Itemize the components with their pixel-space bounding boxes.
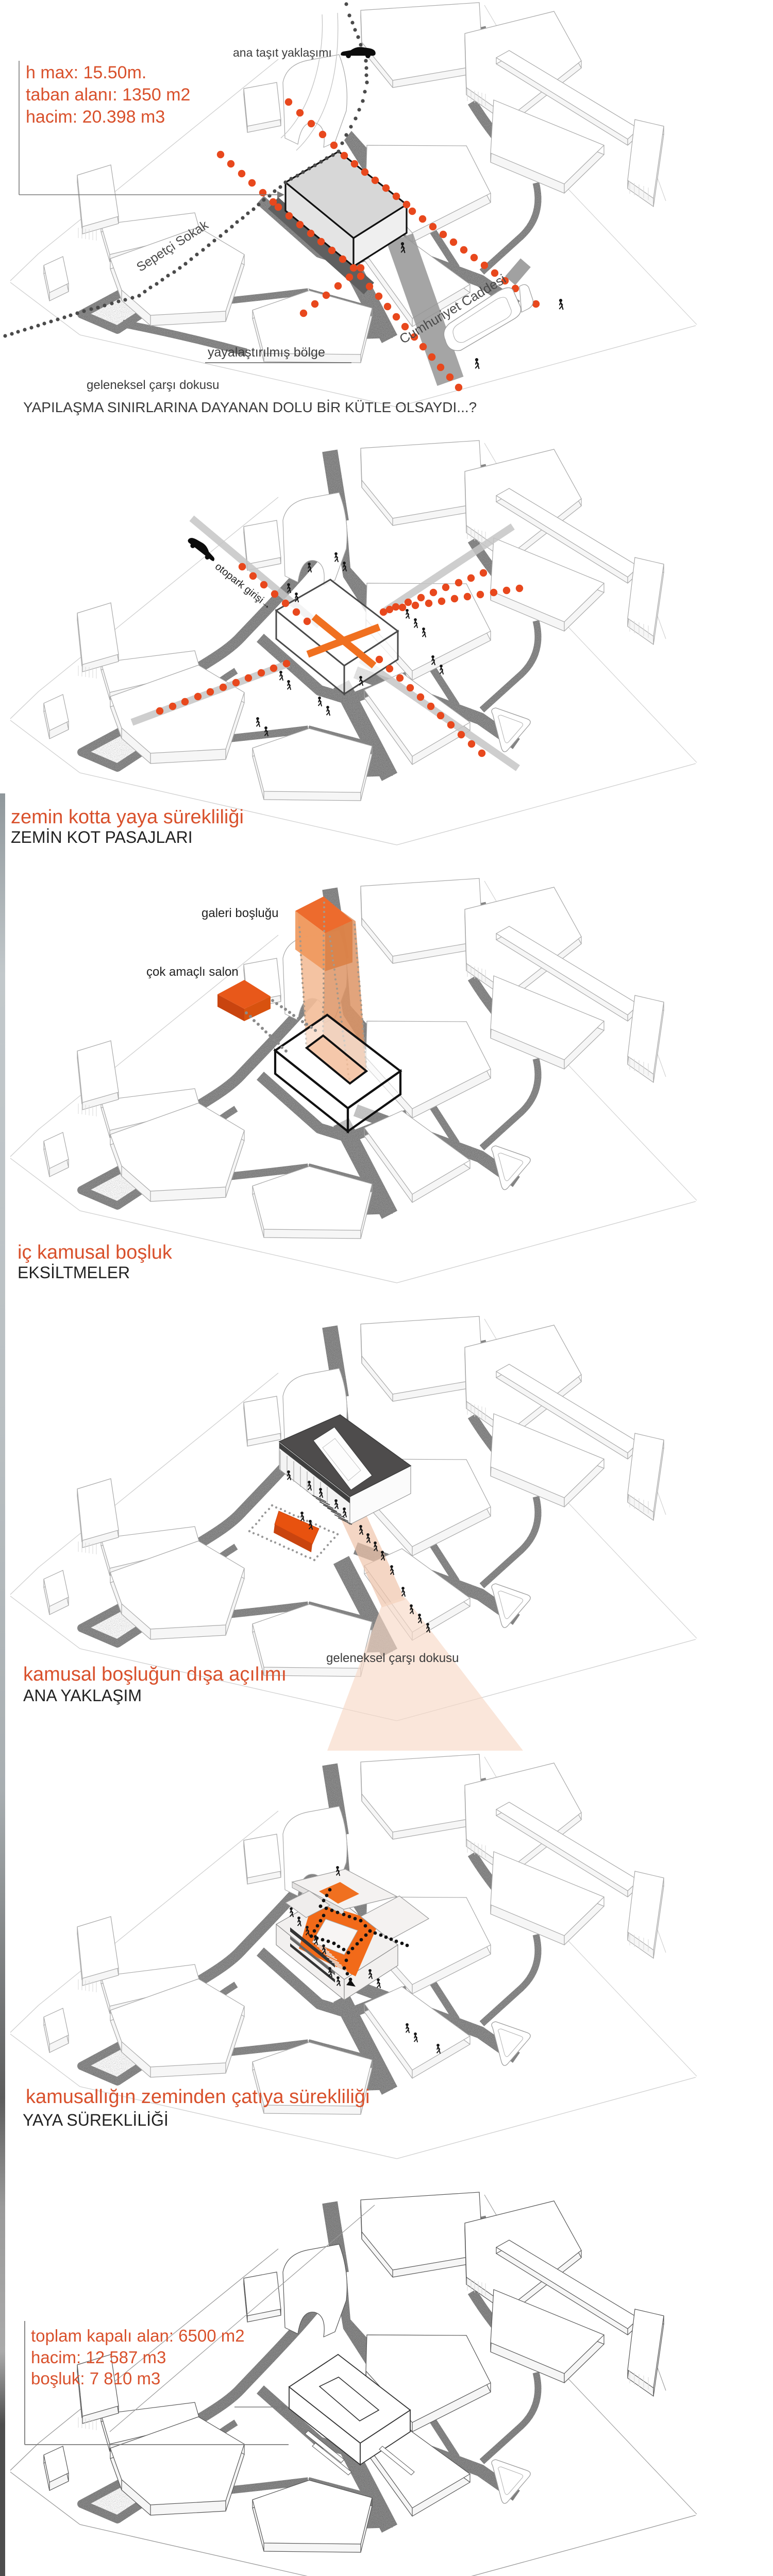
svg-text:YAPILAŞMA SINIRLARINA DAYANAN: YAPILAŞMA SINIRLARINA DAYANAN DOLU BİR K… (23, 399, 477, 415)
svg-text:hacim: 20.398 m3: hacim: 20.398 m3 (26, 107, 165, 127)
svg-text:iç kamusal boşluk: iç kamusal boşluk (18, 1242, 173, 1263)
svg-text:EKSİLTMELER: EKSİLTMELER (18, 1263, 130, 1282)
svg-text:kamusallığın zeminden çatıya s: kamusallığın zeminden çatıya sürekliliği (26, 2086, 369, 2108)
svg-text:yayalaştırılmış bölge: yayalaştırılmış bölge (208, 345, 325, 360)
svg-text:ANA YAKLAŞIM: ANA YAKLAŞIM (23, 1686, 142, 1705)
svg-text:kamusal boşluğun dışa açılımı: kamusal boşluğun dışa açılımı (23, 1664, 287, 1685)
svg-text:ZEMİN KOT PASAJLARI: ZEMİN KOT PASAJLARI (11, 828, 193, 846)
svg-text:taban alanı: 1350 m2: taban alanı: 1350 m2 (26, 85, 190, 105)
svg-text:boşluk: 7 810 m3: boşluk: 7 810 m3 (31, 2369, 160, 2388)
svg-text:geleneksel çarşı dokusu: geleneksel çarşı dokusu (326, 1651, 459, 1665)
svg-text:toplam kapalı alan: 6500 m2: toplam kapalı alan: 6500 m2 (31, 2326, 245, 2345)
svg-text:YAYA SÜREKLİLİĞİ: YAYA SÜREKLİLİĞİ (23, 2111, 169, 2129)
svg-text:geleneksel çarşı dokusu: geleneksel çarşı dokusu (87, 378, 219, 392)
svg-text:çok amaçlı salon: çok amaçlı salon (146, 965, 239, 979)
svg-text:galeri boşluğu: galeri boşluğu (201, 906, 278, 920)
svg-text:hacim: 12 587 m3: hacim: 12 587 m3 (31, 2348, 166, 2367)
svg-text:h max: 15.50m.: h max: 15.50m. (26, 63, 146, 82)
svg-text:ana taşıt yaklaşımı: ana taşıt yaklaşımı (233, 46, 332, 59)
svg-text:zemin kotta yaya sürekliliği: zemin kotta yaya sürekliliği (11, 806, 244, 828)
